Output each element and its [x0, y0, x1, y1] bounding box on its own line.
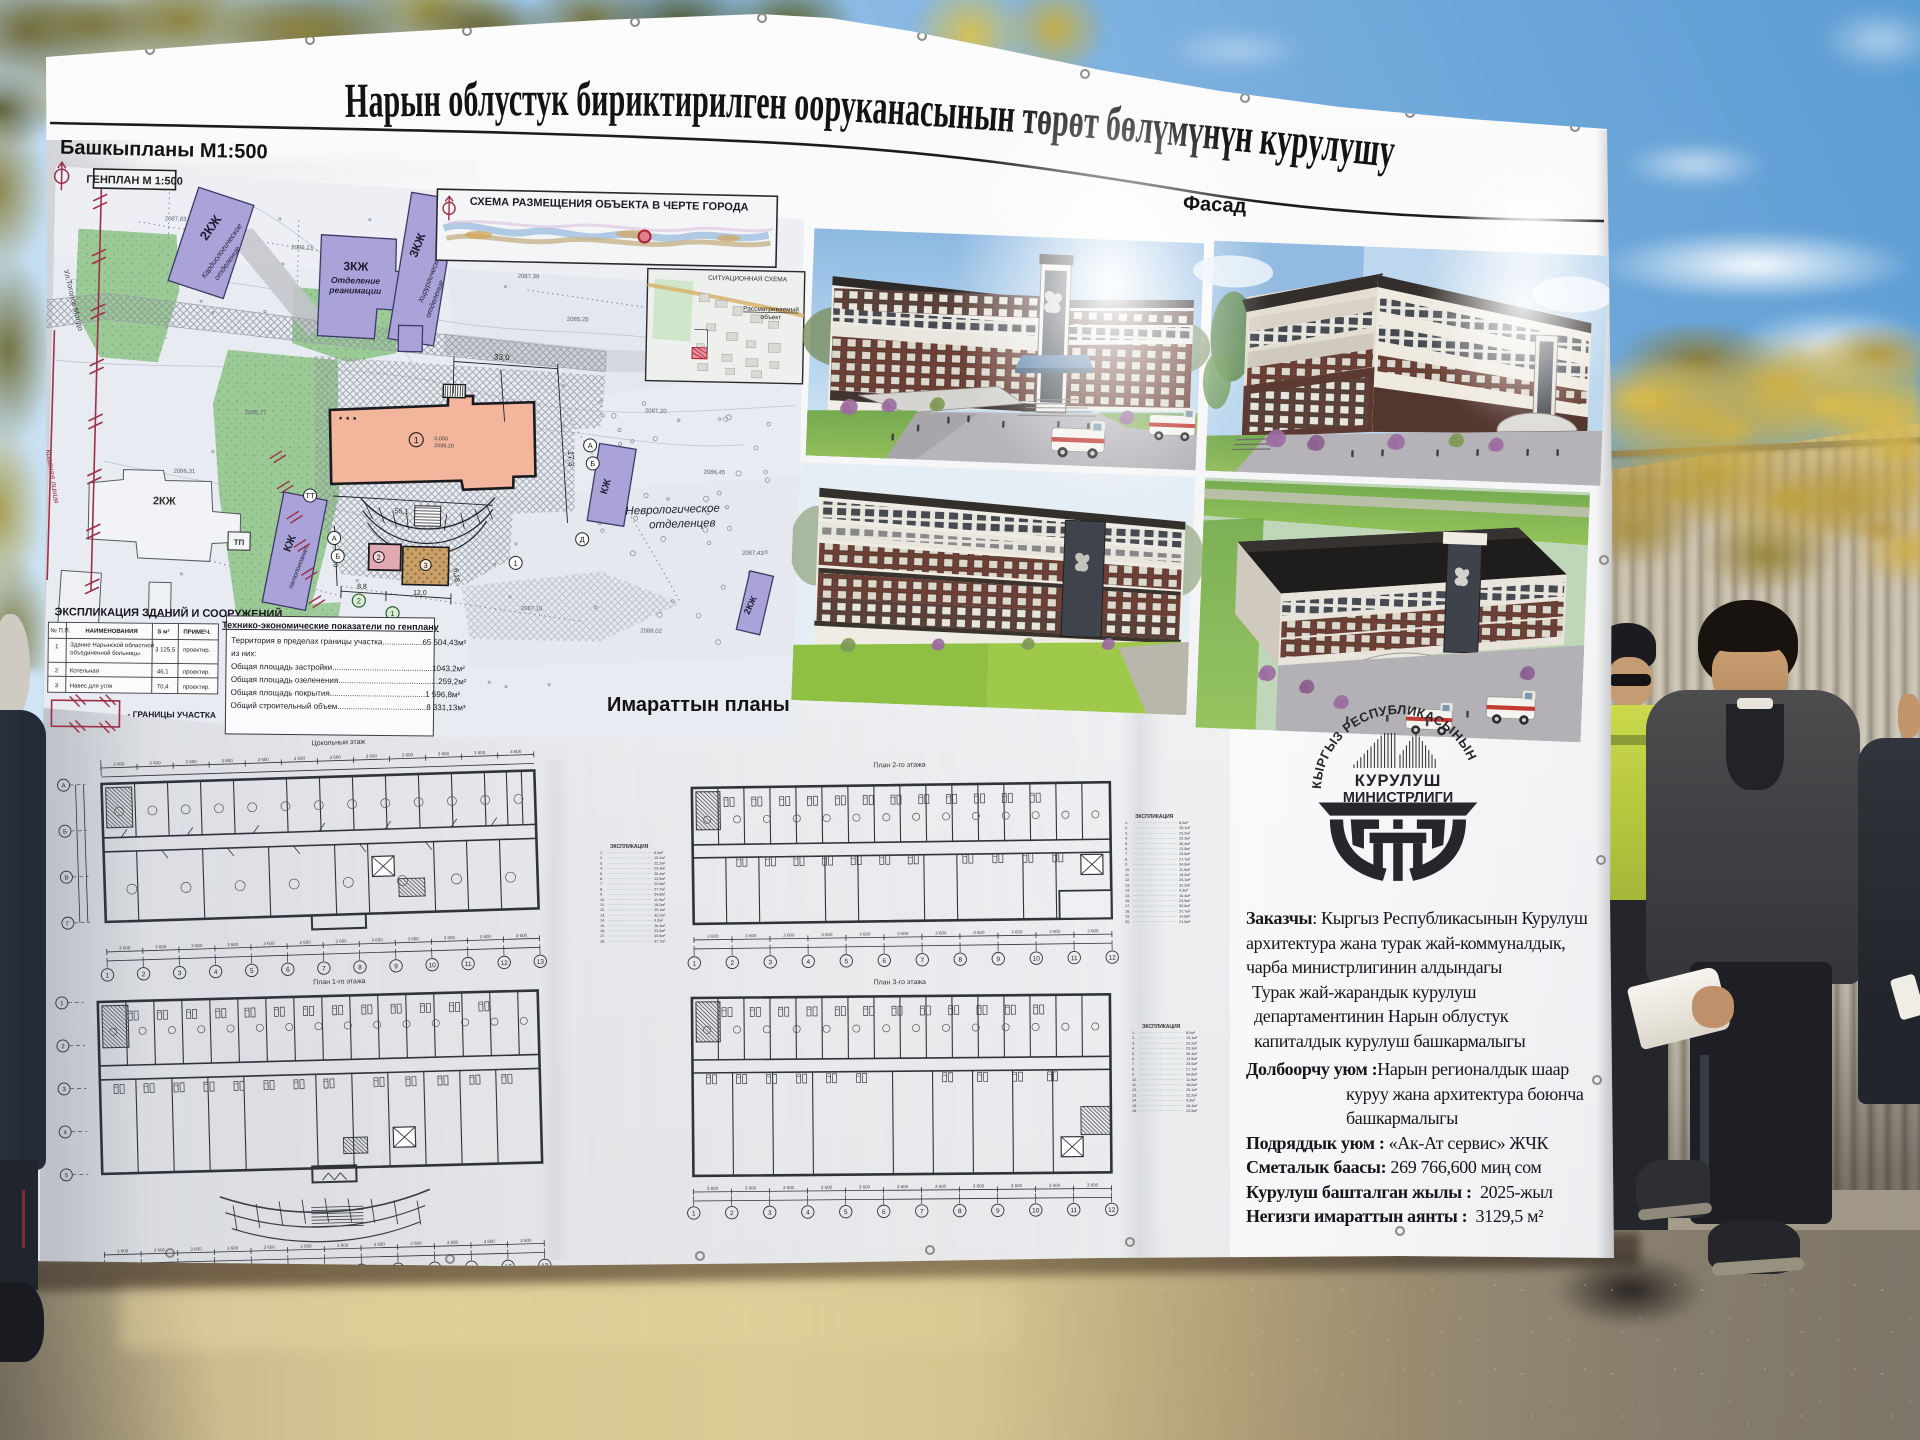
svg-text:3 600: 3 600: [474, 750, 486, 755]
svg-text:14,8м²: 14,8м²: [1179, 915, 1191, 919]
svg-text:3 600: 3 600: [745, 933, 757, 938]
svg-text:4: 4: [806, 959, 810, 966]
svg-text:3 600: 3 600: [149, 760, 161, 765]
svg-text:1: 1: [390, 609, 394, 618]
svg-text:2085,77: 2085,77: [245, 410, 267, 416]
svg-text:Д: Д: [580, 535, 585, 544]
svg-text:3.: 3.: [1125, 831, 1128, 835]
svg-text:ЭКСПЛИКАЦИЯ: ЭКСПЛИКАЦИЯ: [1135, 814, 1174, 820]
svg-text:5: 5: [844, 958, 848, 965]
svg-text:ЭКСПЛИКАЦИЯ: ЭКСПЛИКАЦИЯ: [610, 844, 649, 850]
svg-text:5.: 5.: [1132, 1052, 1135, 1056]
svg-text:3: 3: [62, 1087, 66, 1093]
svg-text:3 600: 3 600: [335, 938, 347, 943]
svg-text:1: 1: [106, 972, 110, 979]
svg-text:2: 2: [142, 971, 146, 978]
svg-text:НАИМЕНОВАНИЯ: НАИМЕНОВАНИЯ: [85, 629, 137, 636]
svg-text:2087,15: 2087,15: [521, 606, 543, 612]
svg-text:15,1м²: 15,1м²: [1186, 1036, 1198, 1040]
svg-text:3 600: 3 600: [973, 930, 985, 935]
svg-text:34,8м²: 34,8м²: [654, 893, 666, 897]
svg-text:9.: 9.: [1132, 1073, 1135, 1077]
svg-text:30,6м²: 30,6м²: [1179, 904, 1191, 908]
svg-text:3 600: 3 600: [783, 933, 795, 938]
svg-text:3 600: 3 600: [438, 751, 450, 756]
svg-text:ПРИМЕЧ.: ПРИМЕЧ.: [183, 630, 211, 636]
svg-text:проектир.: проектир.: [183, 685, 210, 691]
svg-text:9: 9: [996, 956, 1000, 963]
svg-text:7: 7: [920, 1208, 924, 1215]
svg-text:20,6м²: 20,6м²: [654, 882, 666, 886]
svg-text:3: 3: [768, 1210, 772, 1217]
svg-text:3 600: 3 600: [1049, 929, 1061, 934]
svg-text:3 600: 3 600: [264, 1244, 276, 1249]
svg-text:3 600: 3 600: [299, 940, 311, 945]
svg-text:3 600: 3 600: [1011, 929, 1023, 934]
svg-text:3 600: 3 600: [263, 941, 275, 946]
svg-text:3 600: 3 600: [510, 749, 522, 754]
svg-text:11.: 11.: [1132, 1083, 1137, 1087]
svg-text:14.: 14.: [600, 919, 605, 923]
svg-text:3 600: 3 600: [783, 1185, 795, 1190]
svg-text:14.: 14.: [1132, 1099, 1137, 1103]
svg-text:2: 2: [730, 960, 734, 967]
svg-text:36,4м²: 36,4м²: [654, 872, 666, 876]
svg-text:23,5м²: 23,5м²: [654, 929, 666, 933]
svg-text:3 600: 3 600: [935, 1184, 947, 1189]
svg-text:S м²: S м²: [157, 628, 169, 635]
svg-text:8: 8: [358, 964, 362, 971]
svg-text:объект: объект: [760, 313, 781, 321]
svg-text:15.: 15.: [600, 924, 605, 928]
svg-text:А: А: [61, 783, 65, 789]
svg-text:проектир.: проектир.: [183, 648, 210, 654]
svg-text:55,1: 55,1: [395, 508, 409, 515]
svg-text:12: 12: [1109, 955, 1117, 962]
svg-text:16,4м²: 16,4м²: [1179, 894, 1191, 898]
svg-text:21,9м²: 21,9м²: [1179, 920, 1191, 924]
svg-text:2: 2: [61, 1044, 65, 1050]
svg-text:3 600: 3 600: [117, 1248, 129, 1253]
svg-text:5.: 5.: [600, 872, 603, 876]
svg-text:3 600: 3 600: [330, 754, 342, 759]
svg-text:8: 8: [958, 957, 962, 964]
svg-text:27,7м²: 27,7м²: [654, 887, 666, 891]
svg-text:18,0м²: 18,0м²: [654, 903, 666, 907]
svg-text:17.: 17.: [600, 934, 605, 938]
svg-text:4: 4: [63, 1130, 67, 1136]
svg-text:2: 2: [730, 1210, 734, 1217]
svg-text:13.: 13.: [1125, 883, 1130, 887]
svg-text:3 600: 3 600: [520, 1238, 532, 1243]
svg-text:22,2м²: 22,2м²: [654, 861, 666, 865]
svg-text:2.: 2.: [600, 856, 603, 860]
svg-text:1: 1: [60, 1001, 64, 1007]
svg-text:2КЖ: 2КЖ: [153, 495, 176, 507]
svg-text:8,0м²: 8,0м²: [654, 851, 664, 855]
svg-text:29,3м²: 29,3м²: [654, 867, 666, 871]
svg-text:23,5м²: 23,5м²: [1186, 1109, 1198, 1113]
svg-text:5.: 5.: [1125, 842, 1128, 846]
svg-text:3 600: 3 600: [516, 933, 528, 938]
svg-text:22,2м²: 22,2м²: [1186, 1041, 1198, 1045]
svg-text:3 600: 3 600: [859, 931, 871, 936]
svg-text:6.: 6.: [600, 877, 603, 881]
svg-text:12: 12: [501, 960, 509, 967]
svg-text:3: 3: [768, 959, 772, 966]
svg-text:3 600: 3 600: [119, 945, 131, 950]
svg-text:13,5м²: 13,5м²: [1179, 847, 1191, 851]
svg-text:8.: 8.: [1132, 1067, 1135, 1071]
svg-text:8,0м²: 8,0м²: [1179, 821, 1189, 825]
svg-text:11.: 11.: [600, 903, 605, 907]
svg-text:- ГРАНИЦЫ УЧАСТКА: - ГРАНИЦЫ УЧАСТКА: [127, 709, 216, 720]
svg-text:16.: 16.: [1125, 899, 1130, 903]
svg-text:9,3м²: 9,3м²: [1186, 1099, 1196, 1103]
svg-text:1.: 1.: [600, 851, 603, 855]
svg-text:3 600: 3 600: [447, 1240, 459, 1245]
svg-text:3 600: 3 600: [227, 1245, 239, 1250]
svg-text:0,000: 0,000: [434, 436, 448, 442]
svg-text:3 600: 3 600: [444, 935, 456, 940]
svg-text:КУРУЛУШ: КУРУЛУШ: [1355, 772, 1442, 790]
svg-text:18.: 18.: [1125, 909, 1130, 913]
svg-text:4.: 4.: [1125, 837, 1128, 841]
svg-text:36,4м²: 36,4м²: [1179, 842, 1191, 846]
svg-text:10.: 10.: [600, 898, 605, 902]
svg-text:6.: 6.: [1132, 1057, 1135, 1061]
svg-text:32,2м²: 32,2м²: [1186, 1093, 1198, 1097]
svg-text:27,7м²: 27,7м²: [1179, 857, 1191, 861]
svg-text:9: 9: [996, 1208, 1000, 1215]
svg-text:реанимации: реанимации: [328, 285, 382, 296]
svg-text:Б: Б: [63, 829, 67, 835]
svg-text:из них:: из них:: [231, 649, 257, 658]
svg-text:1.: 1.: [1125, 821, 1128, 825]
svg-text:29,3м²: 29,3м²: [1179, 837, 1191, 841]
svg-text:16,4м²: 16,4м²: [654, 924, 666, 928]
svg-text:3.: 3.: [1132, 1041, 1135, 1045]
svg-text:13.: 13.: [1132, 1093, 1137, 1097]
svg-text:15.: 15.: [1132, 1104, 1137, 1108]
svg-text:6: 6: [286, 967, 290, 974]
svg-text:9,3м²: 9,3м²: [654, 919, 664, 923]
svg-text:7.: 7.: [600, 882, 603, 886]
svg-text:3 125,5: 3 125,5: [155, 647, 176, 653]
svg-text:3 600: 3 600: [402, 752, 414, 757]
svg-text:3 600: 3 600: [1087, 1182, 1099, 1187]
svg-text:План 1-го этажа: План 1-го этажа: [313, 978, 366, 986]
svg-text:2086,45: 2086,45: [704, 470, 726, 476]
svg-text:70,4: 70,4: [157, 684, 169, 690]
svg-text:16.: 16.: [1132, 1109, 1137, 1113]
svg-text:3 600: 3 600: [337, 1243, 349, 1248]
svg-text:17.: 17.: [1125, 904, 1130, 908]
svg-text:3 600: 3 600: [1011, 1183, 1023, 1188]
svg-text:3 600: 3 600: [410, 1241, 422, 1246]
svg-text:План 3-го этажа: План 3-го этажа: [874, 979, 926, 986]
svg-text:18,0м²: 18,0м²: [1186, 1083, 1198, 1087]
svg-text:37,7м²: 37,7м²: [654, 939, 666, 943]
svg-text:8: 8: [958, 1208, 962, 1215]
svg-text:12.: 12.: [1132, 1088, 1137, 1092]
svg-text:3 600: 3 600: [190, 1246, 202, 1251]
svg-text:Навес для угля: Навес для угля: [70, 683, 113, 689]
svg-text:20,6м²: 20,6м²: [1186, 1062, 1198, 1066]
svg-text:22,2м²: 22,2м²: [1179, 831, 1191, 835]
svg-text:1: 1: [513, 559, 517, 568]
svg-text:13: 13: [537, 959, 545, 966]
svg-text:36,4м²: 36,4м²: [1186, 1052, 1198, 1056]
svg-text:12: 12: [1108, 1207, 1116, 1214]
svg-text:3 600: 3 600: [191, 943, 203, 948]
svg-text:3 600: 3 600: [366, 753, 378, 758]
svg-text:32,2м²: 32,2м²: [1179, 883, 1191, 887]
svg-text:1: 1: [692, 960, 696, 967]
svg-text:3 600: 3 600: [294, 756, 306, 761]
svg-text:9: 9: [394, 963, 398, 970]
svg-text:3: 3: [423, 561, 427, 570]
svg-text:3 600: 3 600: [821, 1185, 833, 1190]
svg-text:5: 5: [844, 1209, 848, 1216]
svg-text:3.: 3.: [600, 861, 603, 865]
svg-text:11: 11: [1071, 955, 1078, 962]
svg-text:3 600: 3 600: [859, 1184, 871, 1189]
svg-text:20.: 20.: [1125, 920, 1130, 924]
svg-text:18.: 18.: [600, 939, 605, 943]
svg-text:5: 5: [65, 1173, 69, 1179]
svg-text:3 600: 3 600: [707, 1186, 719, 1191]
svg-text:3 600: 3 600: [897, 1184, 909, 1189]
svg-text:11: 11: [465, 961, 472, 968]
svg-text:отделенцев: отделенцев: [649, 517, 716, 531]
svg-text:13.: 13.: [600, 913, 605, 917]
svg-text:12,0: 12,0: [413, 590, 427, 597]
svg-text:3КЖ: 3КЖ: [343, 259, 368, 274]
svg-text:10.: 10.: [1132, 1078, 1137, 1082]
svg-text:Б: Б: [335, 552, 340, 561]
svg-text:32,2м²: 32,2м²: [654, 913, 666, 917]
svg-text:1.: 1.: [1132, 1031, 1135, 1035]
svg-text:6: 6: [882, 958, 886, 965]
svg-text:ГЕНПЛАН М 1:500: ГЕНПЛАН М 1:500: [86, 174, 183, 188]
svg-text:2.: 2.: [1132, 1036, 1135, 1040]
svg-text:29,3м²: 29,3м²: [1186, 1047, 1198, 1051]
svg-text:Котельная: Котельная: [70, 668, 99, 674]
svg-text:3 600: 3 600: [185, 759, 197, 764]
svg-text:6: 6: [882, 1209, 886, 1216]
svg-text:10.: 10.: [1125, 868, 1130, 872]
svg-text:2086,13: 2086,13: [291, 245, 313, 251]
svg-text:2: 2: [357, 596, 361, 605]
svg-text:25,1м²: 25,1м²: [1179, 878, 1191, 882]
svg-text:8,0м²: 8,0м²: [1186, 1031, 1196, 1035]
svg-text:3 600: 3 600: [821, 932, 833, 937]
svg-text:3 600: 3 600: [155, 944, 167, 949]
svg-text:2085,25: 2085,25: [567, 317, 589, 323]
svg-text:Здание Нарынской областной: Здание Нарынской областной: [70, 641, 154, 649]
svg-text:37,7м²: 37,7м²: [1179, 909, 1191, 913]
svg-text:7: 7: [322, 966, 326, 973]
svg-text:8,8: 8,8: [357, 584, 367, 591]
svg-text:4: 4: [214, 969, 218, 976]
svg-text:2087,20: 2087,20: [645, 409, 667, 415]
svg-text:В: В: [64, 875, 68, 881]
svg-text:ТТ: ТТ: [305, 491, 315, 500]
svg-text:Г: Г: [66, 921, 70, 927]
svg-text:проектир.: проектир.: [183, 670, 210, 676]
svg-text:3 600: 3 600: [897, 931, 909, 936]
svg-text:34,8м²: 34,8м²: [1186, 1073, 1198, 1077]
svg-text:13,5м²: 13,5м²: [1186, 1057, 1198, 1061]
svg-text:11: 11: [1070, 1207, 1077, 1214]
svg-text:11,9м²: 11,9м²: [1186, 1078, 1198, 1082]
svg-text:3 600: 3 600: [480, 934, 492, 939]
svg-text:3 600: 3 600: [227, 942, 239, 947]
svg-text:10: 10: [1032, 1207, 1040, 1214]
svg-text:11,9м²: 11,9м²: [654, 898, 666, 902]
svg-text:3 600: 3 600: [300, 1243, 312, 1248]
svg-text:30,6м²: 30,6м²: [654, 934, 666, 938]
svg-text:3 600: 3 600: [1049, 1183, 1061, 1188]
svg-text:14.: 14.: [1125, 889, 1130, 893]
svg-text:19.: 19.: [1125, 915, 1130, 919]
svg-text:3 600: 3 600: [221, 758, 233, 763]
svg-text:12.: 12.: [1125, 878, 1130, 882]
svg-text:№ П.П.: № П.П.: [50, 627, 70, 634]
svg-text:16,4м²: 16,4м²: [1186, 1104, 1198, 1108]
svg-text:ЭКСПЛИКАЦИЯ: ЭКСПЛИКАЦИЯ: [1142, 1024, 1181, 1030]
svg-text:2086,31: 2086,31: [173, 469, 195, 475]
svg-text:7: 7: [920, 957, 924, 964]
svg-text:8.: 8.: [600, 887, 603, 891]
svg-text:3 600: 3 600: [745, 1185, 757, 1190]
svg-text:12.: 12.: [600, 908, 605, 912]
svg-text:9.: 9.: [1125, 863, 1128, 867]
svg-text:2087,83: 2087,83: [165, 216, 187, 222]
svg-text:Рассматриваемый: Рассматриваемый: [743, 305, 799, 314]
svg-text:10: 10: [1033, 956, 1041, 963]
svg-text:5: 5: [250, 968, 254, 975]
svg-text:2: 2: [377, 553, 381, 562]
svg-text:3 600: 3 600: [707, 934, 719, 939]
svg-text:11.: 11.: [1125, 873, 1130, 877]
svg-text:объединенной больницы: объединенной больницы: [70, 649, 140, 657]
svg-text:2.: 2.: [1125, 826, 1128, 830]
svg-text:3 600: 3 600: [408, 936, 420, 941]
svg-text:2088,02: 2088,02: [640, 628, 662, 634]
svg-text:3 600: 3 600: [371, 937, 383, 942]
svg-text:9.: 9.: [600, 893, 603, 897]
svg-text:10: 10: [428, 962, 436, 969]
svg-text:8.: 8.: [1125, 857, 1128, 861]
svg-text:11,9м²: 11,9м²: [1179, 868, 1191, 872]
svg-text:ТП: ТП: [234, 538, 245, 547]
svg-text:4: 4: [806, 1209, 810, 1216]
svg-text:4.: 4.: [1132, 1047, 1135, 1051]
svg-text:Цокольный этаж: Цокольный этаж: [311, 740, 365, 747]
svg-text:1: 1: [692, 1210, 696, 1217]
svg-text:3 600: 3 600: [935, 930, 947, 935]
svg-text:План 2-го этажа: План 2-го этажа: [873, 762, 925, 770]
svg-text:Б: Б: [590, 459, 595, 468]
svg-text:23,5м²: 23,5м²: [1179, 899, 1191, 903]
svg-text:3 600: 3 600: [973, 1183, 985, 1188]
svg-text:2087,38: 2087,38: [518, 274, 540, 280]
svg-text:А: А: [332, 534, 337, 543]
svg-text:27,7м²: 27,7м²: [1186, 1067, 1198, 1071]
svg-text:15.: 15.: [1125, 894, 1130, 898]
svg-text:3 600: 3 600: [154, 1247, 166, 1252]
svg-text:3 600: 3 600: [113, 761, 125, 766]
svg-text:25,1м²: 25,1м²: [1186, 1088, 1198, 1092]
svg-text:34,8м²: 34,8м²: [1179, 863, 1191, 867]
svg-text:9,3м²: 9,3м²: [1179, 889, 1189, 893]
svg-text:20,6м²: 20,6м²: [1179, 852, 1191, 856]
svg-text:15,1м²: 15,1м²: [654, 856, 666, 860]
svg-text:7.: 7.: [1125, 852, 1128, 856]
svg-text:3 600: 3 600: [1087, 928, 1099, 933]
svg-text:2088,20: 2088,20: [434, 443, 454, 449]
svg-text:7.: 7.: [1132, 1062, 1135, 1066]
svg-text:16.: 16.: [600, 929, 605, 933]
svg-text:18,0м²: 18,0м²: [1179, 873, 1191, 877]
svg-text:3 600: 3 600: [483, 1239, 495, 1244]
svg-text:13,5м²: 13,5м²: [654, 877, 666, 881]
svg-text:33,0: 33,0: [494, 352, 511, 362]
svg-text:А: А: [588, 441, 593, 450]
svg-text:1: 1: [414, 435, 419, 445]
svg-text:25,1м²: 25,1м²: [654, 908, 666, 912]
svg-text:15,1м²: 15,1м²: [1179, 826, 1191, 830]
svg-text:46,1: 46,1: [157, 669, 169, 675]
svg-text:4.: 4.: [600, 867, 603, 871]
svg-text:2087,43: 2087,43: [742, 551, 764, 557]
svg-text:6.: 6.: [1125, 847, 1128, 851]
svg-text:3 600: 3 600: [257, 757, 269, 762]
svg-text:3: 3: [178, 970, 182, 977]
svg-text:17,3: 17,3: [566, 451, 576, 468]
svg-text:3 600: 3 600: [374, 1242, 386, 1247]
